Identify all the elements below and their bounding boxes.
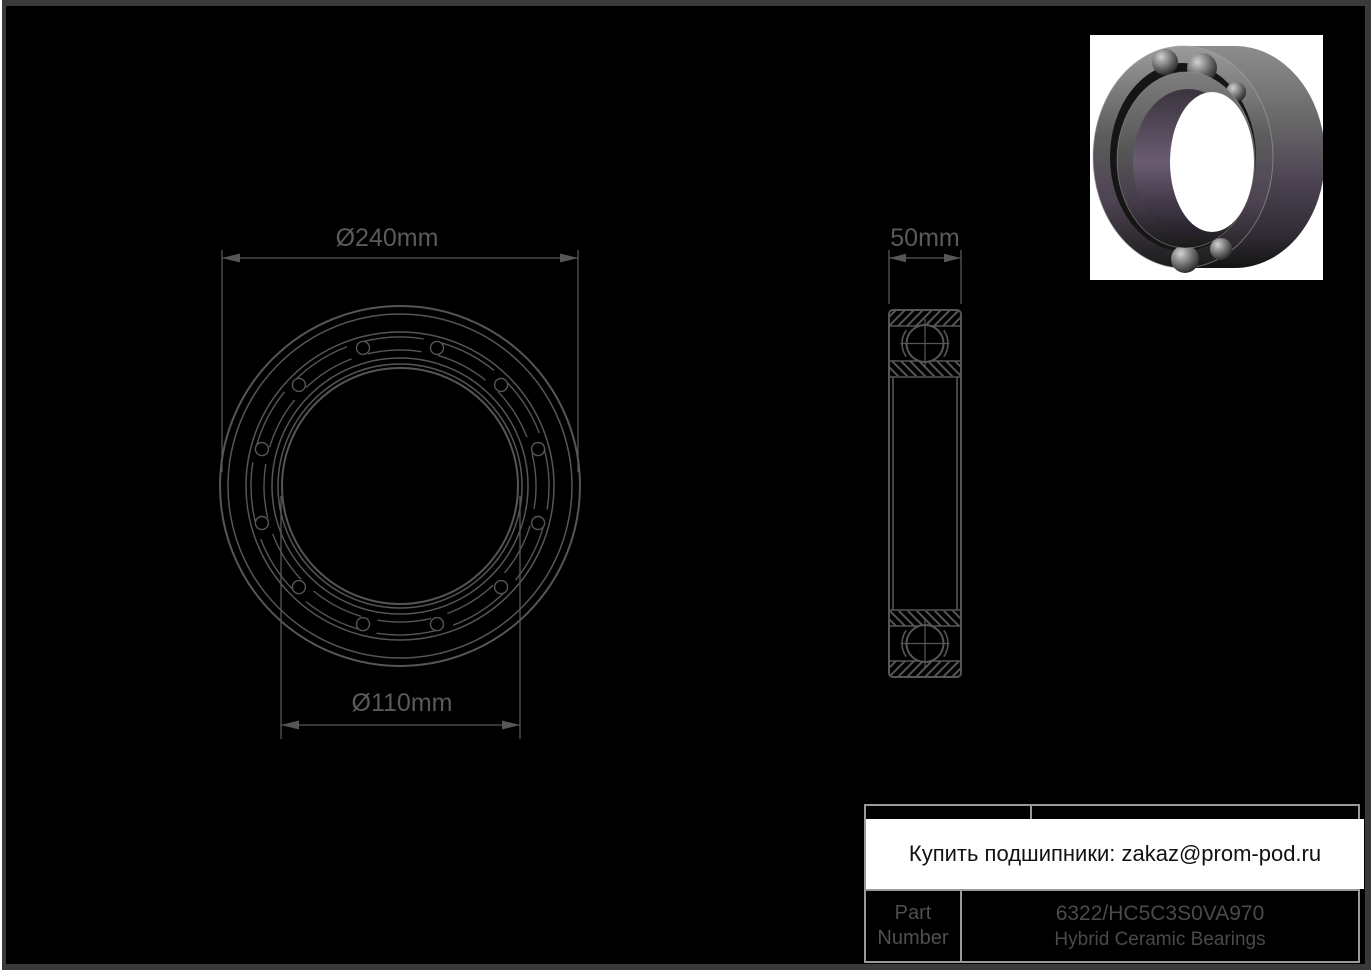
bore-dimension-label: Ø110mm xyxy=(352,689,453,717)
od-dimension-label: Ø240mm xyxy=(336,224,439,252)
part-number-value-cell: 6322/HC5C3S0VA970 Hybrid Ceramic Bearing… xyxy=(962,891,1358,961)
table-part-row: Part Number 6322/HC5C3S0VA970 Hybrid Cer… xyxy=(866,889,1358,961)
arrow-right xyxy=(944,254,961,262)
bearing-3d-image xyxy=(1090,35,1323,280)
left-edge-line xyxy=(0,0,2,970)
cage-rivets xyxy=(255,341,544,630)
arrow-left xyxy=(222,254,240,263)
contact-banner-text: Купить подшипники: zakaz@prom-pod.ru xyxy=(909,841,1321,867)
bore-hole xyxy=(1170,92,1254,232)
part-label-line2: Number xyxy=(877,926,948,951)
contact-banner: Купить подшипники: zakaz@prom-pod.ru xyxy=(866,819,1364,889)
part-label-line1: Part xyxy=(895,901,932,926)
arrow-right xyxy=(502,721,520,730)
part-series-value: Hybrid Ceramic Bearings xyxy=(1054,929,1265,951)
dimension-od xyxy=(222,250,578,472)
bearing-3d-render xyxy=(1090,35,1323,280)
dimension-width xyxy=(889,250,961,304)
part-number-label-cell: Part Number xyxy=(866,891,962,961)
arrow-left xyxy=(281,721,299,730)
bearing-drawing-page: Ø240mm Ø110mm xyxy=(0,0,1371,970)
cage-inner-circle xyxy=(237,323,563,649)
cage-outer-circle xyxy=(219,305,580,666)
side-view xyxy=(889,310,961,677)
front-view xyxy=(219,305,580,666)
width-dimension-label: 50mm xyxy=(890,224,959,252)
arrow-left xyxy=(889,254,906,262)
arrow-right xyxy=(560,254,578,263)
part-number-value: 6322/HC5C3S0VA970 xyxy=(1056,902,1265,926)
